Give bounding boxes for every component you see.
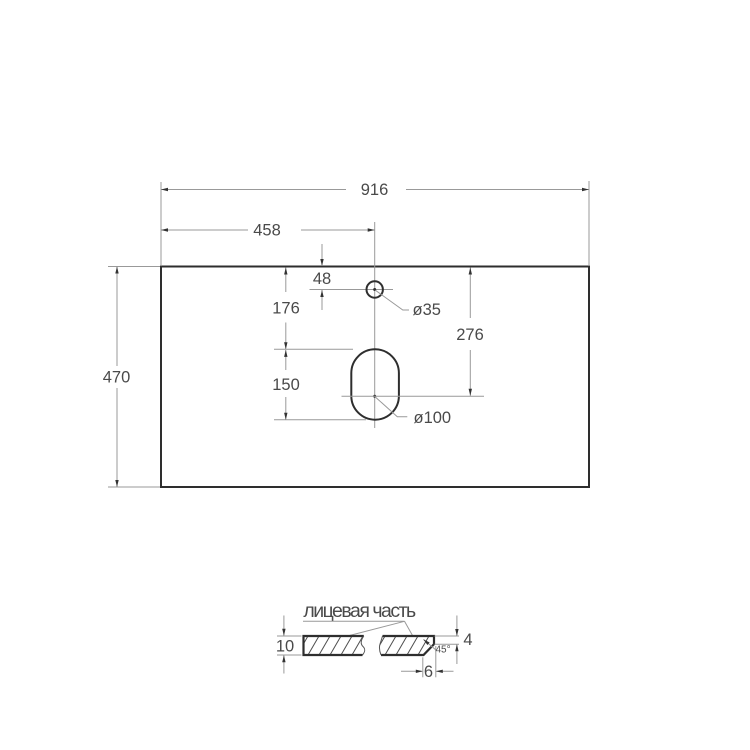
svg-text:45°: 45°	[436, 645, 451, 656]
svg-text:458: 458	[253, 222, 281, 240]
svg-text:6: 6	[424, 663, 433, 681]
svg-text:470: 470	[103, 369, 131, 387]
svg-text:276: 276	[456, 326, 484, 344]
svg-text:916: 916	[361, 181, 389, 199]
svg-text:ø35: ø35	[413, 301, 441, 319]
svg-text:10: 10	[276, 638, 294, 656]
svg-text:лицевая часть: лицевая часть	[303, 600, 416, 622]
svg-text:48: 48	[313, 270, 331, 288]
svg-text:176: 176	[272, 299, 300, 317]
svg-text:150: 150	[272, 376, 300, 394]
svg-text:ø100: ø100	[414, 409, 452, 427]
svg-text:4: 4	[463, 631, 472, 649]
